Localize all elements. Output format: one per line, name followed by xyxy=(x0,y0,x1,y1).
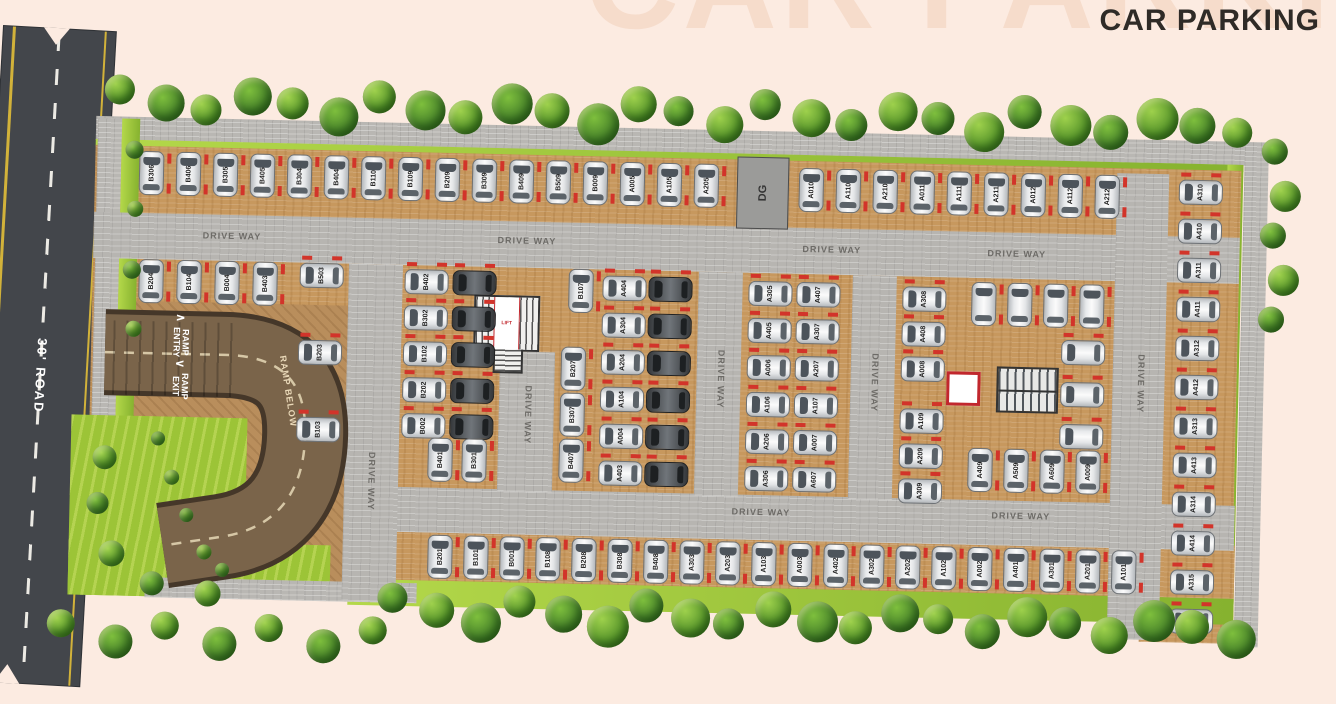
car-slot: A304 xyxy=(601,312,646,338)
driveway-label: DRIVE WAY xyxy=(522,385,533,444)
car-slot: A313 xyxy=(1173,413,1218,439)
car-slot: A404 xyxy=(602,275,647,301)
car-slot: B307 xyxy=(559,393,585,438)
car-slot: A105 xyxy=(656,163,682,208)
car-slot xyxy=(1079,284,1105,329)
staircase xyxy=(996,366,1059,413)
car-slot: A309 xyxy=(898,478,943,504)
car-slot: B104 xyxy=(176,260,202,305)
car-slot: B204 xyxy=(138,259,164,304)
parking-col-a308: A308A408A008 xyxy=(901,286,947,382)
car-slot: A201 xyxy=(1075,549,1101,594)
tree-icon xyxy=(713,608,745,640)
parking-row-2: B204B104B004B403 xyxy=(138,259,278,306)
car-slot: A206 xyxy=(745,429,790,455)
car-slot: A211 xyxy=(983,172,1009,217)
car-slot xyxy=(452,306,497,332)
tree-icon xyxy=(1179,107,1216,144)
car-slot: A008 xyxy=(901,356,946,382)
car-slot: B406 xyxy=(176,152,202,197)
tree-icon xyxy=(797,601,839,643)
stair-flight xyxy=(519,298,538,350)
car-slot: A409 xyxy=(967,448,993,493)
parking-col-a109: A109A209A309 xyxy=(898,408,944,504)
car-slot: A308 xyxy=(902,286,947,312)
car-slot: B109 xyxy=(397,157,423,202)
car-slot xyxy=(1061,340,1106,366)
car-slot xyxy=(450,378,495,404)
driveway-label: DRIVE WAY xyxy=(987,248,1046,259)
car-slot: B304 xyxy=(286,154,312,199)
car-slot: A205 xyxy=(693,163,719,208)
tree-icon xyxy=(620,86,657,123)
car-slot: A311 xyxy=(1177,257,1222,283)
parking-row-top-a: A010A110A210A011A111A211A012A112A212 xyxy=(798,168,1120,219)
car-slot: B403 xyxy=(252,262,278,307)
car-slot xyxy=(644,461,689,487)
car-slot: A107 xyxy=(794,393,839,419)
car-slot: A210 xyxy=(872,170,898,215)
car-slot xyxy=(1007,283,1033,328)
driveway-label: DRIVE WAY xyxy=(991,510,1050,521)
parking-compound: DRIVE WAY DRIVE WAY DRIVE WAY DRIVE WAY … xyxy=(0,0,1336,704)
tree-icon xyxy=(586,605,629,648)
car-slot: A010 xyxy=(798,168,824,213)
driveway-label: DRIVE WAY xyxy=(497,235,556,246)
car-slot: A411 xyxy=(1176,296,1221,322)
car-slot: B302 xyxy=(404,305,449,331)
driveway-label: DRIVE WAY xyxy=(715,350,726,409)
car-slot: A009 xyxy=(1075,450,1101,495)
tree-icon xyxy=(460,602,501,643)
car-slot: A303 xyxy=(679,540,705,585)
tree-icon xyxy=(671,598,711,638)
car-slot: A314 xyxy=(1172,491,1217,517)
car-slot: B101 xyxy=(463,535,489,580)
car-slot: B309 xyxy=(471,158,497,203)
parking-pairs-a404: A404A304A204A104A004A403 xyxy=(598,275,697,487)
car-slot xyxy=(1043,283,1069,328)
tree-icon xyxy=(964,614,1000,650)
car-slot: A305 xyxy=(748,281,793,307)
car-slot: A011 xyxy=(909,170,935,215)
car-slot: A005 xyxy=(619,162,645,207)
ramp-entry-label: ∧ RAMPENTRY xyxy=(141,313,220,357)
car-slot: A306 xyxy=(744,466,789,492)
car-slot: B202 xyxy=(402,377,447,403)
tree-icon xyxy=(362,80,396,114)
car-slot: B308 xyxy=(607,539,633,584)
car-slot: B401 xyxy=(427,438,453,483)
car-slot: A302 xyxy=(859,544,885,589)
tree-icon xyxy=(1007,95,1042,130)
tree-icon xyxy=(755,591,792,628)
car-slot: A414 xyxy=(1171,530,1216,556)
car-slot: B404 xyxy=(323,155,349,200)
tree-icon xyxy=(1269,181,1301,213)
car-slot: B305 xyxy=(213,153,239,198)
car-slot: A403 xyxy=(598,460,643,486)
car-slot: A408 xyxy=(901,321,946,347)
tree-icon xyxy=(1262,138,1289,165)
driveway-label: DRIVE WAY xyxy=(802,244,861,255)
car-slot: A101 xyxy=(1111,550,1137,595)
car-slot: B107 xyxy=(568,269,594,314)
car-slot: B509 xyxy=(545,160,571,205)
car-slot: A111 xyxy=(946,171,972,216)
car-slot: A207 xyxy=(794,356,839,382)
parking-row-rmid-bottom: A409A509A609A009 xyxy=(967,448,1101,495)
car-slot: B408 xyxy=(643,539,669,584)
ramp-exit-arrow-icon: ∨ xyxy=(173,359,186,368)
car-slot: A204 xyxy=(601,349,646,375)
car-slot: A412 xyxy=(1174,374,1219,400)
parking-col-rmid-right xyxy=(1059,340,1105,450)
parking-pairs-left: B402B302B102B202B002 xyxy=(401,269,499,440)
car-slot: B001 xyxy=(499,536,525,581)
car-slot: A401 xyxy=(1003,548,1029,593)
car-slot: B209 xyxy=(434,158,460,203)
tree-icon xyxy=(1049,607,1082,640)
car-slot: A405 xyxy=(747,318,792,344)
car-slot: B306 xyxy=(139,151,165,196)
car-slot xyxy=(1060,382,1105,408)
driveway-label: DRIVE WAY xyxy=(731,506,790,517)
car-slot: A002 xyxy=(967,547,993,592)
tree-icon xyxy=(358,616,387,645)
tree-icon xyxy=(1258,306,1285,333)
driveway-label: DRIVE WAY xyxy=(203,230,262,241)
tree-icon xyxy=(1007,597,1048,638)
car-slot: A413 xyxy=(1172,452,1217,478)
car-slot xyxy=(449,414,494,440)
tree-icon xyxy=(194,580,221,607)
car-slot: A102 xyxy=(931,546,957,591)
tree-icon xyxy=(629,588,664,623)
car-slot: B409 xyxy=(508,159,534,204)
car-slot: A402 xyxy=(823,544,849,589)
car-slot xyxy=(971,282,997,327)
car-slot xyxy=(452,270,497,296)
car-slot: A007 xyxy=(793,430,838,456)
car-slot: B108 xyxy=(535,537,561,582)
car-slot xyxy=(1059,424,1104,450)
tree-icon xyxy=(1216,619,1256,659)
tree-icon xyxy=(147,84,185,122)
car-slot: A106 xyxy=(746,392,791,418)
tree-icon xyxy=(663,96,694,127)
car-slot: A104 xyxy=(600,386,645,412)
tree-icon xyxy=(503,585,536,618)
car-slot: B201 xyxy=(427,535,453,580)
tree-icon xyxy=(1268,265,1300,297)
car-slot: A004 xyxy=(599,423,644,449)
car-slot: A203 xyxy=(715,541,741,586)
tree-icon xyxy=(545,595,583,633)
tree-icon xyxy=(921,102,955,136)
parking-block-middle: A305A407A405A307A006A207A106A107A206A007… xyxy=(744,281,843,493)
car-slot: A110 xyxy=(835,169,861,214)
parking-row-rmid-top xyxy=(971,282,1105,329)
tree-icon xyxy=(306,629,341,664)
car-slot: B004 xyxy=(214,261,240,306)
car-slot xyxy=(647,350,692,376)
car-slot: A003 xyxy=(787,543,813,588)
tree-icon xyxy=(46,609,75,638)
car-slot: A112 xyxy=(1057,174,1083,219)
car-slot xyxy=(648,276,693,302)
car-slot: A310 xyxy=(1179,179,1224,205)
car-slot: A103 xyxy=(751,542,777,587)
car-slot: B102 xyxy=(403,341,448,367)
tree-icon xyxy=(491,83,533,125)
parking-col-b207: B207B307B407 xyxy=(558,347,586,484)
car-slot: B208 xyxy=(571,538,597,583)
car-slot: B402 xyxy=(404,269,449,295)
car-slot: A301 xyxy=(1039,548,1065,593)
car-slot: B301 xyxy=(461,438,487,483)
car-slot: A607 xyxy=(792,467,837,493)
car-slot: A202 xyxy=(895,545,921,590)
tree-icon xyxy=(878,92,918,132)
tree-icon xyxy=(1090,617,1128,655)
tree-icon xyxy=(233,77,272,116)
driveway-label: DRIVE WAY xyxy=(1135,354,1146,413)
tree-icon xyxy=(105,74,136,105)
tree-icon xyxy=(749,89,781,121)
tree-icon xyxy=(276,87,309,120)
car-slot: B203 xyxy=(298,340,343,366)
driveway-label: DRIVE WAY xyxy=(869,353,880,412)
car-slot xyxy=(646,387,691,413)
car-slot: A315 xyxy=(1170,569,1215,595)
car-slot: A209 xyxy=(899,443,944,469)
tree-icon xyxy=(202,626,237,661)
car-slot: A312 xyxy=(1175,335,1220,361)
stair-flight xyxy=(493,349,524,374)
car-slot: A012 xyxy=(1020,173,1046,218)
car-slot: B207 xyxy=(560,347,586,392)
car-slot: A006 xyxy=(747,355,792,381)
car-slot: A307 xyxy=(795,319,840,345)
car-slot xyxy=(645,424,690,450)
tree-icon xyxy=(150,611,179,640)
parking-col-ramp: B503B203B103 xyxy=(296,263,344,443)
car-slot: B002 xyxy=(401,413,446,439)
tree-icon xyxy=(1260,222,1287,249)
dg-block: DG xyxy=(736,156,790,229)
car-slot: B009 xyxy=(582,161,608,206)
car-slot xyxy=(451,342,496,368)
tree-icon xyxy=(377,582,408,613)
tree-icon xyxy=(254,614,283,643)
parking-pair-b401: B401B301 xyxy=(427,438,487,483)
car-slot: A609 xyxy=(1039,449,1065,494)
tree-icon xyxy=(923,604,954,635)
car-slot: A410 xyxy=(1178,218,1223,244)
tree-icon xyxy=(839,611,873,645)
car-slot: A109 xyxy=(899,408,944,434)
car-slot: A509 xyxy=(1003,449,1029,494)
car-slot: A407 xyxy=(796,282,841,308)
tree-icon xyxy=(419,592,455,628)
car-slot: B407 xyxy=(558,438,584,483)
car-slot: B110 xyxy=(360,156,386,201)
ramp-exit-label: ∨ RAMPEXIT xyxy=(140,357,219,401)
tree-icon xyxy=(98,624,133,659)
tree-icon xyxy=(534,93,570,129)
tree-icon xyxy=(1136,98,1179,141)
car-slot: B103 xyxy=(296,417,341,443)
car-slot: B405 xyxy=(250,153,276,198)
car-slot: A212 xyxy=(1094,175,1120,220)
car-slot xyxy=(647,313,692,339)
parking-slot-b107: B107 xyxy=(568,269,594,314)
car-slot: B503 xyxy=(299,263,344,289)
lift xyxy=(946,371,981,406)
tree-icon xyxy=(881,594,920,633)
ramp-entry-arrow-icon: ∧ xyxy=(174,313,187,322)
